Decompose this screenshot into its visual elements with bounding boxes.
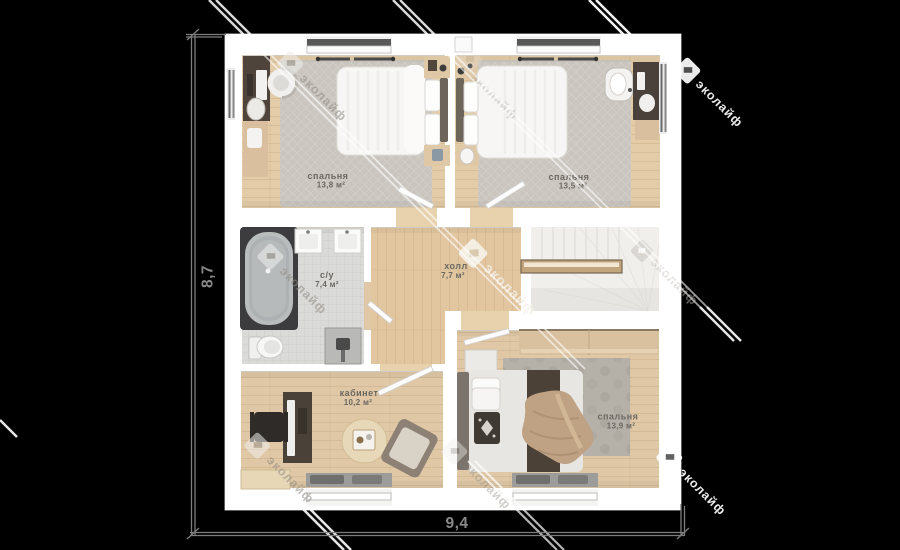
svg-text:спальня: спальня xyxy=(598,412,639,422)
svg-text:холл: холл xyxy=(444,261,468,271)
svg-text:13,9 м²: 13,9 м² xyxy=(607,422,636,431)
svg-text:кабинет: кабинет xyxy=(340,388,379,398)
svg-text:13,8 м²: 13,8 м² xyxy=(317,181,346,190)
svg-text:7,7 м²: 7,7 м² xyxy=(441,271,465,280)
svg-text:с/у: с/у xyxy=(320,270,334,280)
svg-text:9,4: 9,4 xyxy=(445,515,468,532)
svg-text:10,2 м²: 10,2 м² xyxy=(344,398,373,407)
svg-text:8,7: 8,7 xyxy=(200,265,217,288)
svg-text:7,4 м²: 7,4 м² xyxy=(315,280,339,289)
svg-text:спальня: спальня xyxy=(308,171,349,181)
